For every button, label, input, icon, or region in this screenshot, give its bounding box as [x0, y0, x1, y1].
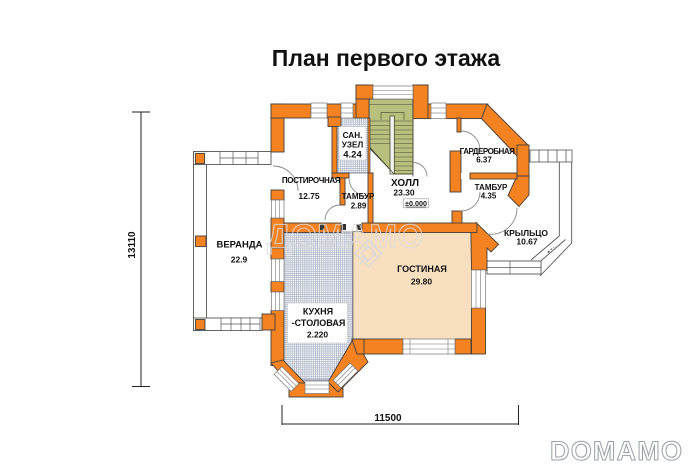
svg-text:4.35: 4.35 [481, 192, 497, 201]
svg-text:DOMAMO: DOMAMO [550, 436, 683, 466]
svg-text:13110: 13110 [127, 231, 138, 259]
svg-text:10.67: 10.67 [516, 237, 538, 247]
svg-text:УЗЕЛ: УЗЕЛ [342, 141, 364, 150]
svg-text:2.89: 2.89 [351, 202, 367, 211]
svg-text:ГОСТИНАЯ: ГОСТИНАЯ [397, 264, 447, 274]
svg-text:4.24: 4.24 [343, 150, 362, 161]
svg-text:6.37: 6.37 [476, 156, 492, 165]
svg-text:2.220: 2.220 [307, 330, 329, 340]
svg-text:КУХНЯ: КУХНЯ [303, 307, 333, 317]
svg-text:11500: 11500 [374, 413, 402, 424]
svg-text:ПОСТИРОЧНАЯ: ПОСТИРОЧНАЯ [282, 176, 341, 185]
svg-text:САН.: САН. [343, 131, 363, 140]
svg-text:29.80: 29.80 [411, 277, 433, 287]
svg-text:22.9: 22.9 [231, 255, 248, 265]
svg-text:ВЕРАНДА: ВЕРАНДА [216, 240, 262, 251]
svg-text:ТАМБУР: ТАМБУР [342, 192, 375, 201]
svg-text:±0.000: ±0.000 [405, 199, 427, 208]
svg-text:ДОМАМО: ДОМАМО [267, 218, 424, 255]
svg-text:12.75: 12.75 [298, 191, 320, 201]
svg-text:-СТОЛОВАЯ: -СТОЛОВАЯ [292, 318, 346, 328]
svg-text:План первого этажа: План первого этажа [272, 45, 501, 71]
svg-text:23.30: 23.30 [393, 188, 415, 198]
